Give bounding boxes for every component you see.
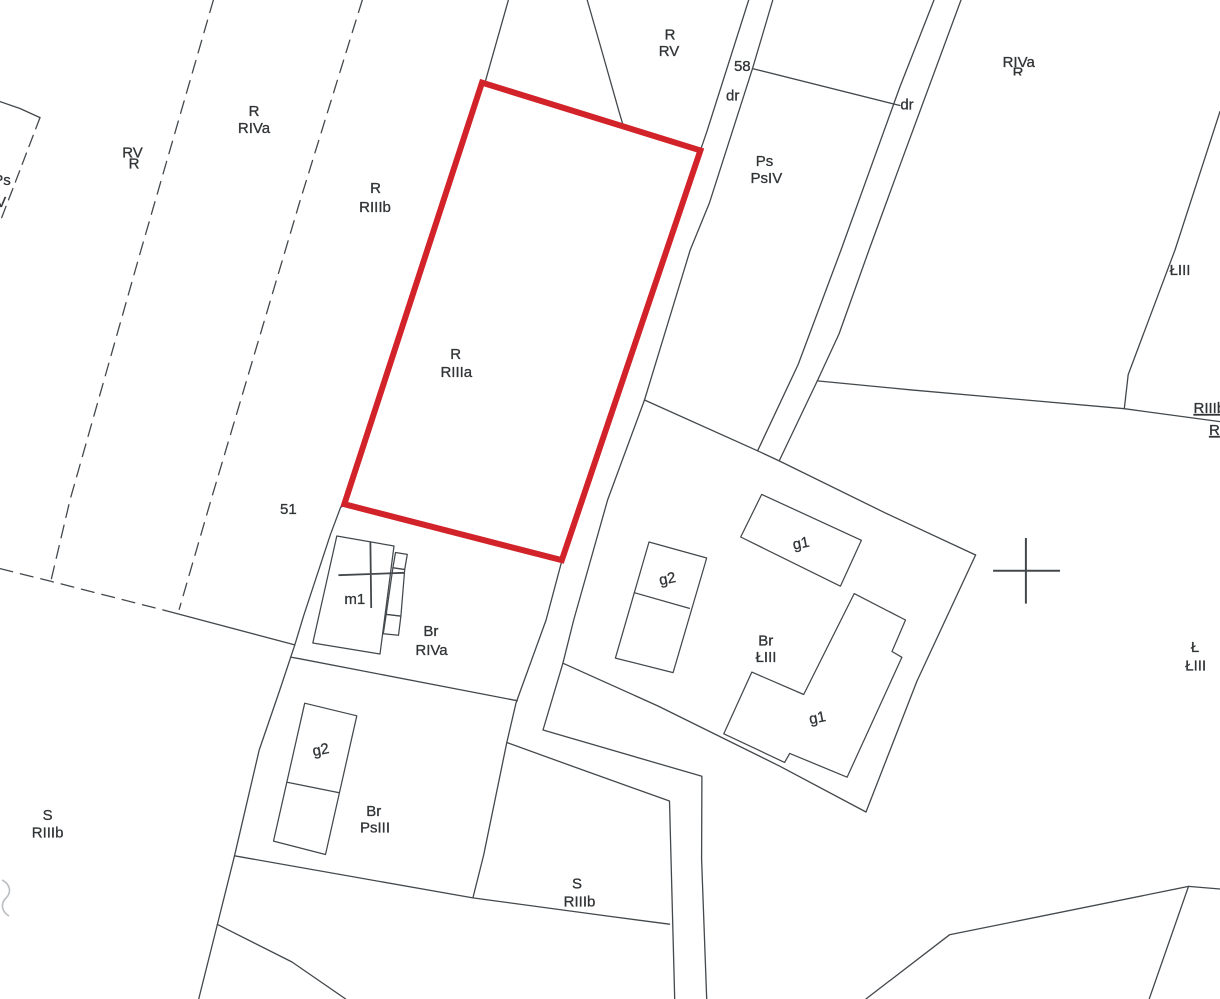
svg-text:RIVa: RIVa	[238, 120, 271, 137]
svg-text:Br: Br	[423, 623, 438, 640]
svg-text:g1: g1	[791, 534, 811, 554]
svg-text:R: R	[249, 103, 260, 120]
svg-text:58: 58	[734, 58, 751, 75]
svg-text:S: S	[572, 876, 582, 893]
svg-text:RIIIb: RIIIb	[32, 825, 64, 842]
svg-text:ŁIII: ŁIII	[1170, 262, 1191, 279]
svg-text:dr: dr	[900, 97, 913, 114]
svg-text:g2: g2	[311, 740, 331, 760]
svg-text:PsIII: PsIII	[360, 820, 390, 837]
svg-text:Ps: Ps	[756, 153, 774, 170]
svg-text:ŁIII: ŁIII	[756, 649, 777, 666]
svg-text:g1: g1	[808, 708, 828, 728]
svg-text:RIIIa: RIIIa	[440, 364, 472, 381]
svg-text:S: S	[43, 807, 53, 824]
svg-text:R: R	[370, 180, 381, 197]
svg-text:Ł: Ł	[1191, 639, 1199, 656]
svg-text:Ps: Ps	[0, 172, 11, 189]
svg-text:R: R	[450, 346, 461, 363]
svg-text:RIIIb: RIIIb	[359, 199, 391, 216]
svg-text:Br: Br	[366, 803, 381, 820]
svg-text:R: R	[1209, 422, 1220, 439]
svg-text:R: R	[665, 27, 676, 44]
svg-text:RIIIb: RIIIb	[1194, 400, 1220, 417]
svg-text:RV: RV	[659, 43, 680, 60]
svg-text:m1: m1	[344, 591, 365, 608]
svg-text:51: 51	[280, 501, 297, 518]
svg-text:g2: g2	[658, 569, 678, 589]
svg-text:dr: dr	[726, 88, 739, 105]
svg-text:Br: Br	[758, 633, 773, 650]
svg-text:ŁIII: ŁIII	[1185, 658, 1206, 675]
svg-text:RIVa: RIVa	[415, 642, 448, 659]
svg-text:IV: IV	[0, 194, 6, 211]
svg-text:RIIIb: RIIIb	[564, 893, 596, 910]
svg-text:R: R	[129, 156, 140, 173]
svg-text:PsIV: PsIV	[751, 170, 783, 187]
